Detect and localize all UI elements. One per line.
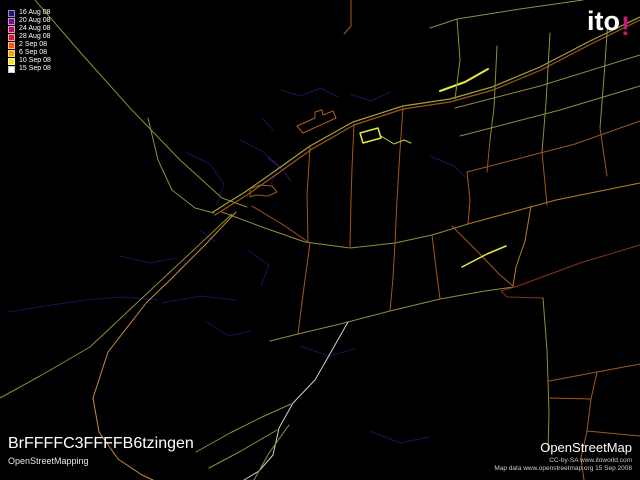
legend-swatch (8, 66, 15, 73)
road-path (370, 431, 429, 443)
road-path (381, 136, 411, 144)
road-path (487, 140, 490, 172)
road-path (300, 346, 355, 356)
ito-logo-exclamation: ! (621, 11, 630, 42)
map-subtitle: OpenStreetMapping (8, 456, 194, 466)
ito-logo: ito! (587, 6, 630, 37)
road-path (542, 33, 550, 152)
road-path (0, 214, 232, 398)
road-path (501, 245, 640, 298)
legend-item-label: 20 Aug 08 (19, 17, 51, 25)
legend-item: 6 Sep 08 (8, 49, 51, 57)
road-path (460, 86, 640, 136)
road-path (513, 206, 531, 286)
road-path (587, 431, 640, 436)
road-path (215, 20, 640, 215)
road-path (244, 322, 348, 480)
road-path (587, 399, 591, 431)
road-path (542, 152, 547, 205)
road-path (196, 404, 291, 452)
legend-item-label: 28 Aug 08 (19, 33, 51, 41)
road-path (395, 108, 403, 243)
map-canvas[interactable] (0, 0, 640, 480)
road-path (120, 256, 176, 263)
legend-item-label: 16 Aug 08 (19, 9, 51, 17)
legend-swatch (8, 34, 15, 41)
road-path (162, 296, 236, 303)
map-title: BrFFFFC3FFFFB6tzingen (8, 435, 194, 453)
road-path (344, 0, 351, 34)
road-path (432, 235, 440, 299)
road-path (390, 243, 395, 311)
road-path (468, 183, 640, 224)
legend-swatch (8, 50, 15, 57)
road-path (297, 110, 336, 133)
road-path (205, 321, 250, 336)
road-path (252, 206, 308, 242)
legend-item: 20 Aug 08 (8, 17, 51, 25)
road-path (350, 92, 390, 101)
legend-swatch (8, 26, 15, 33)
road-path (600, 128, 607, 176)
road-path (298, 243, 310, 334)
road-path (360, 128, 381, 143)
road-path (543, 298, 549, 450)
road-path (350, 124, 354, 248)
road-path (550, 398, 591, 399)
road-path (455, 19, 460, 99)
attribution-title: OpenStreetMap (494, 440, 632, 455)
title-block: BrFFFFC3FFFFB6tzingen OpenStreetMapping (8, 435, 194, 466)
legend-swatch (8, 58, 15, 65)
legend-item: 2 Sep 08 (8, 41, 51, 49)
legend-item: 10 Sep 08 (8, 57, 51, 65)
road-path (213, 17, 640, 212)
road-path (281, 88, 338, 97)
ito-logo-text: ito (587, 6, 620, 36)
road-path (462, 246, 506, 267)
osm-mapper-window: 16 Aug 0820 Aug 0824 Aug 0828 Aug 082 Se… (0, 0, 640, 480)
legend-swatch (8, 18, 15, 25)
legend-item-label: 24 Aug 08 (19, 25, 51, 33)
road-path (250, 185, 277, 197)
road-path (262, 118, 274, 131)
legend-item: 24 Aug 08 (8, 25, 51, 33)
attribution-license: CC-by-SA www.itoworld.com (494, 457, 632, 464)
road-path (240, 140, 279, 186)
road-path (249, 251, 269, 286)
legend-item: 16 Aug 08 (8, 9, 51, 17)
attribution-mapdata: Map data www.openstreetmap.org 15 Sep 20… (494, 465, 632, 472)
date-legend: 16 Aug 0820 Aug 0824 Aug 0828 Aug 082 Se… (8, 9, 51, 73)
legend-item-label: 6 Sep 08 (19, 49, 47, 57)
road-path (490, 46, 497, 140)
road-path (222, 212, 468, 248)
legend-swatch (8, 10, 15, 17)
road-path (591, 372, 597, 399)
road-path (430, 0, 583, 28)
road-path (549, 364, 640, 381)
legend-item: 28 Aug 08 (8, 33, 51, 41)
road-path (148, 118, 214, 213)
legend-item-label: 10 Sep 08 (19, 57, 51, 65)
road-path (35, 0, 247, 207)
road-path (185, 152, 224, 205)
road-path (307, 147, 310, 242)
legend-item-label: 2 Sep 08 (19, 41, 47, 49)
legend-item: 15 Sep 08 (8, 65, 51, 73)
legend-item-label: 15 Sep 08 (19, 65, 51, 73)
road-path (467, 121, 640, 172)
road-path (440, 69, 488, 91)
legend-swatch (8, 42, 15, 49)
road-path (430, 156, 470, 181)
attribution-block: OpenStreetMap CC-by-SA www.itoworld.com … (494, 440, 632, 472)
